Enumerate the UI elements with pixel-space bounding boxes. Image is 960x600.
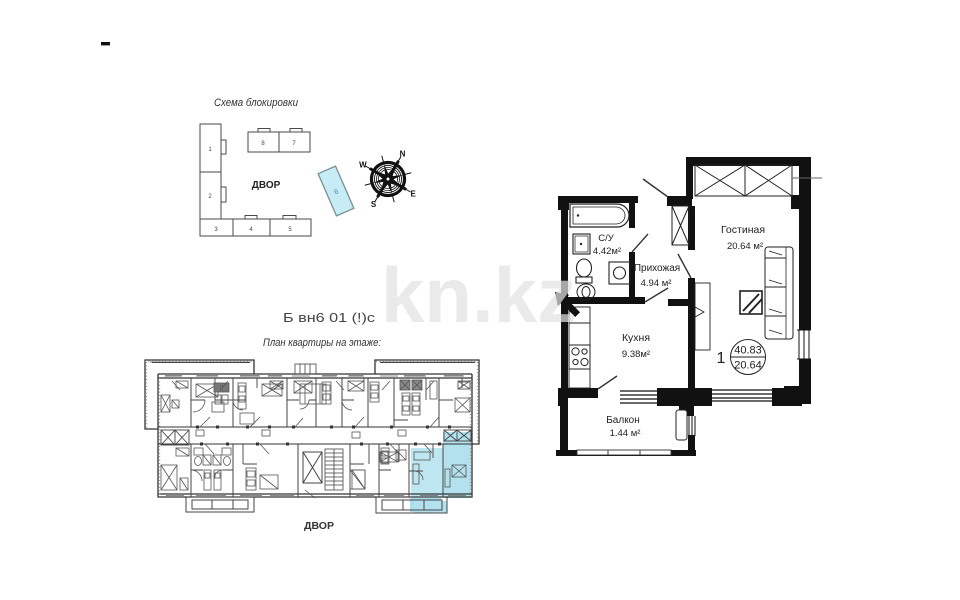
svg-text:Б вн6 01 (!)с: Б вн6 01 (!)с — [283, 310, 376, 325]
svg-text:1.44 м²: 1.44 м² — [610, 428, 641, 439]
svg-text:W: W — [359, 161, 367, 170]
svg-text:Прихожая: Прихожая — [634, 263, 680, 274]
svg-text:N: N — [400, 149, 406, 158]
svg-text:4.94 м²: 4.94 м² — [641, 278, 672, 289]
svg-text:План квартиры на этаже:: План квартиры на этаже: — [263, 337, 381, 349]
svg-text:20.64: 20.64 — [734, 360, 762, 372]
svg-text:40.83: 40.83 — [734, 345, 762, 357]
svg-text:Гостиная: Гостиная — [721, 224, 765, 236]
svg-text:Балкон: Балкон — [606, 415, 640, 426]
svg-text:ДВОР: ДВОР — [252, 180, 281, 191]
svg-text:4.42м²: 4.42м² — [593, 246, 621, 257]
svg-text:ДВОР: ДВОР — [304, 520, 334, 532]
svg-text:20.64 м²: 20.64 м² — [727, 241, 763, 252]
svg-text:Кухня: Кухня — [622, 332, 650, 344]
svg-text:С/У: С/У — [598, 233, 615, 244]
svg-text:1: 1 — [717, 350, 726, 367]
svg-text:9.38м²: 9.38м² — [622, 349, 650, 360]
svg-text:E: E — [410, 190, 416, 199]
svg-text:kn.kz: kn.kz — [381, 251, 576, 339]
svg-text:S: S — [371, 200, 377, 209]
svg-text:Схема блокировки: Схема блокировки — [214, 97, 298, 109]
